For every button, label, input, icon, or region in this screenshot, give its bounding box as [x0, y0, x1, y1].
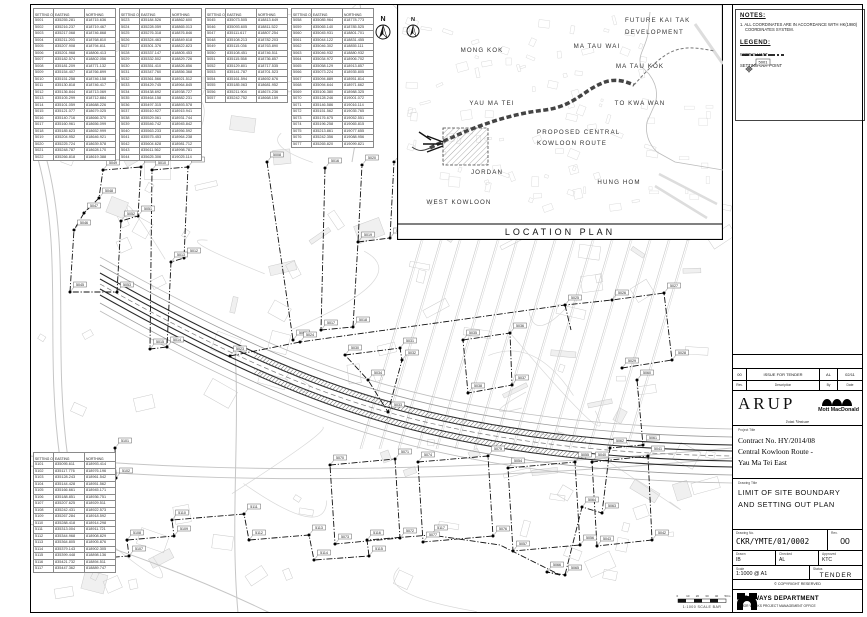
point-id: 5028 — [678, 351, 686, 355]
point-dot — [114, 447, 117, 450]
cell: 835242.752 — [226, 96, 257, 103]
place-label: KOWLOON ROUTE — [537, 140, 607, 147]
rev-value: 00 — [831, 536, 859, 546]
point-dot — [651, 539, 654, 542]
notes-heading: NOTES: — [740, 13, 860, 19]
drawn-label: Drawn — [736, 552, 772, 556]
north-arrow-icon: N — [376, 16, 390, 39]
point-id: 5023 — [236, 347, 244, 351]
point-dot — [546, 571, 549, 574]
point-dot — [98, 197, 101, 200]
col-header: EASTING — [54, 453, 85, 462]
drawing-sheet: 5045504650475048504950505051505250535010… — [0, 0, 867, 617]
point-dot — [140, 166, 143, 169]
point-dot — [581, 506, 584, 509]
point-dot — [126, 539, 129, 542]
point-id: 5107 — [135, 547, 143, 551]
point-id: 5016 — [331, 159, 339, 163]
point-id: 5031 — [406, 339, 414, 343]
point-id: 5052 — [127, 212, 135, 216]
scale-tick: 50m — [725, 594, 731, 598]
point-dot — [467, 392, 470, 395]
point-dot — [266, 161, 269, 164]
point-id: 5043 — [603, 537, 611, 541]
point-dot — [399, 347, 402, 350]
point-dot — [149, 348, 152, 351]
place-label: DEVELOPMENT — [625, 29, 684, 36]
col-header: EASTING — [312, 9, 343, 18]
point-dot — [509, 332, 512, 335]
drawing-no-label: Drawing No. — [736, 531, 824, 535]
approved-value: KTC — [822, 557, 859, 563]
legend-heading: LEGEND: — [740, 40, 860, 46]
rev-date: 02/11 — [838, 369, 862, 381]
table-row: 5117835447.362818889.747 — [34, 566, 116, 573]
rev-description: ISSUE FOR TENDER — [747, 369, 820, 381]
place-label: MONG KOK — [461, 47, 504, 54]
point-dot — [173, 535, 176, 538]
project-name-line2: Yau Ma Tei East — [738, 458, 857, 467]
col-header: NORTHING — [343, 9, 374, 18]
point-dot — [243, 513, 246, 516]
point-id: 5049 — [109, 161, 117, 165]
cell: 835625.306 — [140, 154, 171, 161]
right-panel: NOTES: 1. ALL COORDINATES ARE IN ACCORDA… — [733, 5, 863, 612]
point-id: 5063 — [608, 504, 616, 508]
point-dot — [636, 379, 639, 382]
drawing-title-line2: AND SETTING OUT PLAN — [738, 500, 857, 509]
point-id: 5013 — [177, 253, 185, 257]
ckr-alignment-corridor — [100, 257, 732, 483]
point-id: 5117 — [437, 526, 445, 530]
point-id: 5030 — [351, 346, 359, 350]
point-dot — [69, 291, 72, 294]
scale-cell: Scale 1:1000 @ A1 — [733, 566, 810, 579]
rev-header: Date — [838, 381, 862, 390]
point-dot — [401, 359, 404, 362]
point-id: 5015 — [156, 340, 164, 344]
point-dot — [102, 169, 105, 172]
point-id: 5020 — [368, 156, 376, 160]
point-id: 5026 — [618, 291, 626, 295]
point-dot — [116, 291, 119, 294]
rev-header: Description — [747, 381, 820, 390]
point-id: 5051 — [144, 207, 152, 211]
cell: 819025.114 — [171, 154, 202, 161]
point-id: 5037 — [518, 376, 526, 380]
scale-tick: 10 — [686, 594, 690, 598]
revision-table: 00 ISSUE FOR TENDER AL 02/11 Rev. Descri… — [733, 369, 862, 391]
point-id: 5065 — [571, 566, 579, 570]
place-label: PROPOSED CENTRAL — [537, 129, 620, 136]
col-header: EASTING — [140, 9, 171, 18]
scale-tick: 30 — [705, 594, 709, 598]
point-dot — [394, 458, 397, 461]
status-value: TENDER — [813, 572, 859, 579]
col-header: SETTING OUT POINT — [120, 9, 140, 18]
point-id: 5053 — [123, 283, 131, 287]
point-dot — [229, 355, 232, 358]
point-dot — [248, 539, 251, 542]
point-id: 5064 — [588, 498, 596, 502]
point-id: 5108 — [133, 531, 141, 535]
north-label: N — [411, 17, 415, 23]
point-id: 5018 — [359, 318, 367, 322]
point-id: 5048 — [105, 189, 113, 193]
mott-macdonald-label: Mott MacDonald — [818, 407, 859, 413]
cell: 5117 — [34, 566, 54, 573]
point-id: 5101 — [121, 439, 129, 443]
joint-venture-label: Joint Venture — [733, 419, 862, 424]
point-dot — [320, 329, 323, 332]
col-header: SETTING OUT POINT — [34, 453, 54, 462]
point-id: 5109 — [180, 527, 188, 531]
scale-tick: 20 — [696, 594, 700, 598]
drawn-cell: Drawn IB — [733, 551, 776, 565]
point-dot — [361, 164, 364, 167]
point-id: 5010 — [158, 161, 166, 165]
point-dot — [357, 241, 360, 244]
revision-empty-row — [733, 355, 862, 369]
point-id: 5027 — [670, 284, 678, 288]
point-dot — [611, 299, 614, 302]
point-id: 5113 — [315, 526, 323, 530]
point-id: 5032 — [408, 351, 416, 355]
checked-value: AL — [779, 557, 815, 563]
scale-value: 1:1000 @ A1 — [736, 571, 806, 577]
example-point-id: 5001 — [759, 60, 769, 65]
point-id: 5074 — [424, 453, 432, 457]
rev-by: AL — [820, 369, 838, 381]
point-dot — [387, 411, 390, 414]
scale-tick: 0 — [677, 594, 679, 598]
point-dot — [344, 354, 347, 357]
consultant-logos: ARUP Mott MacDonald Joint Venture — [733, 391, 862, 426]
point-dot — [574, 461, 577, 464]
point-id: 5017 — [327, 321, 335, 325]
col-header: NORTHING — [85, 9, 116, 18]
point-dot — [507, 467, 510, 470]
place-label: TO KWA WAN — [615, 100, 666, 107]
point-id: 5055 — [581, 453, 589, 457]
point-id: 5035 — [469, 331, 477, 335]
point-id: 5012 — [190, 249, 198, 253]
status-label: Status — [813, 567, 859, 571]
staff-row: Drawn IB Checked AL Approved KTC — [733, 551, 862, 566]
setting-out-table-5: SETTING OUT POINTEASTINGNORTHING51018350… — [33, 452, 116, 573]
cell: 818668.159 — [257, 96, 288, 103]
setting-out-point-icon: 5001 — [740, 57, 786, 75]
point-dot — [171, 519, 174, 522]
col-header: NORTHING — [171, 9, 202, 18]
place-label: WEST KOWLOON — [427, 199, 492, 206]
point-dot — [128, 555, 131, 558]
point-dot — [389, 237, 392, 240]
point-dot — [329, 464, 332, 467]
rev-header: Rev. — [733, 381, 747, 390]
point-dot — [511, 384, 514, 387]
place-label: MA TAU KOK — [616, 63, 664, 70]
point-dot — [422, 541, 425, 544]
point-dot — [73, 229, 76, 232]
point-dot — [596, 545, 599, 548]
rev-label: Rev. — [831, 531, 859, 535]
table-row: 5077835265.820819099.821 — [292, 141, 374, 148]
place-label: HUNG HOM — [597, 179, 640, 186]
scale-bar-label: 1:1000 SCALE BAR — [683, 605, 722, 609]
point-dot — [642, 444, 645, 447]
location-plan-caption: LOCATION PLAN — [505, 227, 615, 237]
drawing-title-line1: LIMIT OF SITE BOUNDARY — [738, 488, 857, 497]
point-id: 5034 — [374, 371, 382, 375]
setting-out-table-1: SETTING OUT POINTEASTINGNORTHING50018352… — [33, 8, 116, 161]
point-id: 5019 — [364, 233, 372, 237]
point-id: 5057 — [519, 542, 527, 546]
point-id: 5054 — [514, 459, 522, 463]
point-dot — [393, 161, 396, 164]
col-header: NORTHING — [257, 9, 288, 18]
revision-cell: Rev. 00 — [828, 530, 862, 550]
point-id: 5070 — [336, 456, 344, 460]
drawing-title-box: Drawing Title LIMIT OF SITE BOUNDARY AND… — [733, 479, 862, 530]
point-dot — [417, 461, 420, 464]
table-row: 5044835625.306819025.114 — [120, 154, 202, 161]
point-dot — [462, 339, 465, 342]
point-id: 5047 — [90, 204, 98, 208]
rev-header: By — [820, 381, 838, 390]
point-dot — [512, 550, 515, 553]
point-id: 5045 — [76, 283, 84, 287]
point-dot — [151, 169, 154, 172]
point-id: 5111 — [250, 505, 257, 509]
cell: 5022 — [34, 154, 54, 161]
point-id: 5008 — [273, 153, 281, 157]
point-id: 5041 — [654, 447, 662, 451]
cell: 835447.362 — [54, 566, 85, 573]
point-dot — [308, 534, 311, 537]
point-id: 5075 — [494, 447, 502, 451]
point-dot — [166, 346, 169, 349]
point-id: 5024 — [306, 333, 314, 337]
point-dot — [492, 535, 495, 538]
mott-macdonald-logo-icon — [820, 396, 856, 407]
place-label: YAU MA TEI — [469, 100, 514, 107]
col-header: NORTHING — [85, 453, 116, 462]
checked-cell: Checked AL — [776, 551, 819, 565]
drawing-title-label: Drawing Title — [738, 481, 857, 485]
scale-status-row: Scale 1:1000 @ A1 Status TENDER — [733, 566, 862, 580]
point-dot — [591, 461, 594, 464]
point-dot — [366, 539, 369, 542]
point-dot — [609, 447, 612, 450]
project-name-line1: Central Kowloon Route - — [738, 447, 857, 456]
point-id: 5056 — [586, 536, 594, 540]
point-dot — [313, 559, 316, 562]
point-dot — [292, 339, 295, 342]
point-dot — [564, 574, 567, 577]
point-id: 5061 — [649, 436, 657, 440]
location-plan: MONG KOKMA TAU WAIMA TAU KOKYAU MA TEITO… — [397, 4, 723, 240]
point-id: 5014 — [173, 338, 181, 342]
point-dot — [579, 544, 582, 547]
point-dot — [487, 455, 490, 458]
approved-label: Approved — [822, 552, 859, 556]
drawing-number-row: Drawing No. CKR/YMTE/01/0002 Rev. 00 — [733, 530, 862, 551]
cell: 5044 — [120, 154, 140, 161]
site-extent-hatch — [443, 128, 488, 165]
col-header: SETTING OUT POINT — [292, 9, 312, 18]
project-title-label: Project Title — [738, 428, 857, 432]
point-id: 5114 — [320, 551, 328, 555]
contract-no: Contract No. HY/2014/08 — [738, 436, 857, 445]
col-header: EASTING — [226, 9, 257, 18]
approved-cell: Approved KTC — [819, 551, 862, 565]
point-dot — [601, 512, 604, 515]
point-id: 5038 — [474, 384, 482, 388]
point-id: 5116 — [373, 531, 381, 535]
scale-bar: 01020304050m 1:1000 SCALE BAR — [677, 594, 731, 609]
point-id: 5110 — [178, 511, 186, 515]
point-dot — [564, 304, 567, 307]
title-block: 00 ISSUE FOR TENDER AL 02/11 Rev. Descri… — [733, 354, 862, 613]
table-row: 5022835266.818818619.388 — [34, 154, 116, 161]
point-id: 5029 — [628, 359, 636, 363]
point-dot — [324, 167, 327, 170]
checked-label: Checked — [779, 552, 815, 556]
drawing-number-cell: Drawing No. CKR/YMTE/01/0002 — [733, 530, 828, 550]
point-dot — [671, 359, 674, 362]
project-title-box: Project Title Contract No. HY/2014/08 Ce… — [733, 426, 862, 479]
drawn-value: IB — [736, 557, 772, 563]
point-dot — [367, 379, 370, 382]
cell: 818619.388 — [85, 154, 116, 161]
point-dot — [120, 220, 123, 223]
point-id: 5102 — [122, 469, 130, 473]
point-id: 5040 — [598, 453, 606, 457]
legend-row-setting-out-point: 5001 SETTING OUT POINT — [740, 63, 860, 68]
north-label: N — [380, 16, 385, 23]
cell: 5057 — [206, 96, 226, 103]
col-header: SETTING OUT POINT — [34, 9, 54, 18]
point-id: 5072 — [406, 529, 414, 533]
setting-out-table-4: SETTING OUT POINTEASTINGNORTHING50588350… — [291, 8, 374, 148]
point-dot — [83, 212, 86, 215]
place-label: JORDAN — [471, 169, 503, 176]
highways-department-block: HIGHWAYS DEPARTMENT MAJOR WORKS PROJECT … — [733, 590, 862, 613]
highways-department-logo-icon — [737, 593, 759, 610]
point-dot — [170, 261, 173, 264]
point-id: 5060 — [643, 371, 651, 375]
scale-tick: 40 — [715, 594, 719, 598]
point-id: 5046 — [80, 221, 88, 225]
point-dot — [299, 341, 302, 344]
point-id: 5115 — [375, 547, 383, 551]
col-header: SETTING OUT POINT — [206, 9, 226, 18]
drawing-no-value: CKR/YMTE/01/0002 — [736, 537, 824, 546]
point-id: 5066 — [553, 563, 561, 567]
point-dot — [621, 367, 624, 370]
cell: 5077 — [292, 141, 312, 148]
point-id: 5077 — [429, 533, 437, 537]
note-line: COORDINATES SYSTEM. — [745, 27, 860, 32]
point-id: 5112 — [255, 531, 263, 535]
setting-out-table-3: SETTING OUT POINTEASTINGNORTHING50458350… — [205, 8, 288, 103]
table-row: 5057835242.752818668.159 — [206, 96, 288, 103]
point-id: 5073 — [341, 535, 349, 539]
point-id: 5033 — [394, 403, 402, 407]
point-dot — [352, 326, 355, 329]
point-id: 5062 — [616, 439, 624, 443]
point-id: 5071 — [401, 450, 409, 454]
cell: 835266.818 — [54, 154, 85, 161]
point-dot — [399, 537, 402, 540]
rev-no: 00 — [733, 369, 747, 381]
point-dot — [647, 455, 650, 458]
place-label: FUTURE KAI TAK — [625, 17, 690, 24]
arup-logo: ARUP — [738, 394, 795, 414]
cell: 819099.821 — [343, 141, 374, 148]
col-header: EASTING — [54, 9, 85, 18]
status-cell: Status TENDER — [810, 566, 862, 579]
point-dot — [187, 166, 190, 169]
point-id: 5036 — [516, 324, 524, 328]
notes-box: NOTES: 1. ALL COORDINATES ARE IN ACCORDA… — [735, 9, 865, 121]
setting-out-table-2: SETTING OUT POINTEASTINGNORTHING50238351… — [119, 8, 202, 161]
point-dot — [368, 555, 371, 558]
point-dot — [334, 543, 337, 546]
copyright-line: © COPYRIGHT RESERVED — [733, 580, 862, 590]
point-id: 5025 — [571, 296, 579, 300]
point-dot — [663, 292, 666, 295]
point-id: 5042 — [658, 531, 666, 535]
cell: 835265.820 — [312, 141, 343, 148]
cell: 818889.747 — [85, 566, 116, 573]
place-label: MA TAU WAI — [574, 43, 621, 50]
point-id: 5076 — [499, 527, 507, 531]
